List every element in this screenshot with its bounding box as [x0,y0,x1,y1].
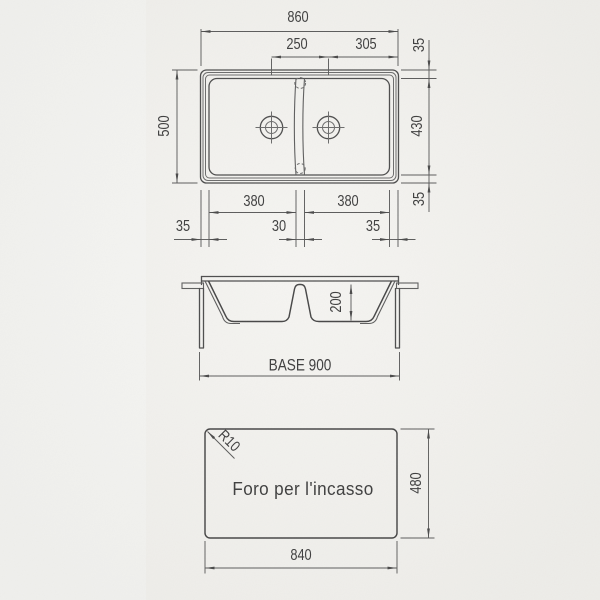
dim-rim-bottom: 35 [412,192,428,206]
sink-rim-section [202,277,399,285]
technical-drawing-page: 860 250 305 35 500 430 35 380 380 35 30 … [0,0,600,600]
dim-rim-left: 35 [176,219,190,235]
dim-divider-width: 30 [272,219,286,235]
dim-drain-spacing: 250 [286,37,307,53]
bowl-section-profile [205,281,395,324]
left-bowl-drain [256,112,288,144]
cabinet-walls [200,289,400,349]
dim-bowl-height: 200 [329,291,345,312]
top-view-dimension-lines [172,29,437,247]
left-mounting-tab [182,283,204,289]
dim-overall-depth: 500 [157,115,173,136]
top-view-drawing [172,29,437,247]
cutout-caption: Foro per l'incasso [232,480,373,498]
scan-noise-overlay [0,0,600,600]
cutout-dimension-lines [205,429,435,574]
dim-cutout-height: 480 [409,472,425,493]
dim-drain-to-edge: 305 [355,37,376,53]
right-mounting-tab [397,283,419,289]
dim-left-bowl-width: 380 [243,194,264,210]
base-width-label: BASE 900 [269,357,332,374]
dim-rim-right: 35 [366,219,380,235]
dim-rim-top: 35 [412,38,428,52]
dim-right-bowl-width: 380 [337,194,358,210]
cutout-view-drawing [205,429,435,574]
dim-bowl-depth: 430 [410,115,426,136]
right-bowl-drain [313,112,345,144]
dim-overall-width: 860 [287,10,308,26]
sink-outline [201,70,399,183]
bowl-divider [294,79,304,176]
dim-cutout-width: 840 [290,548,311,564]
drawing-linework [0,0,600,600]
